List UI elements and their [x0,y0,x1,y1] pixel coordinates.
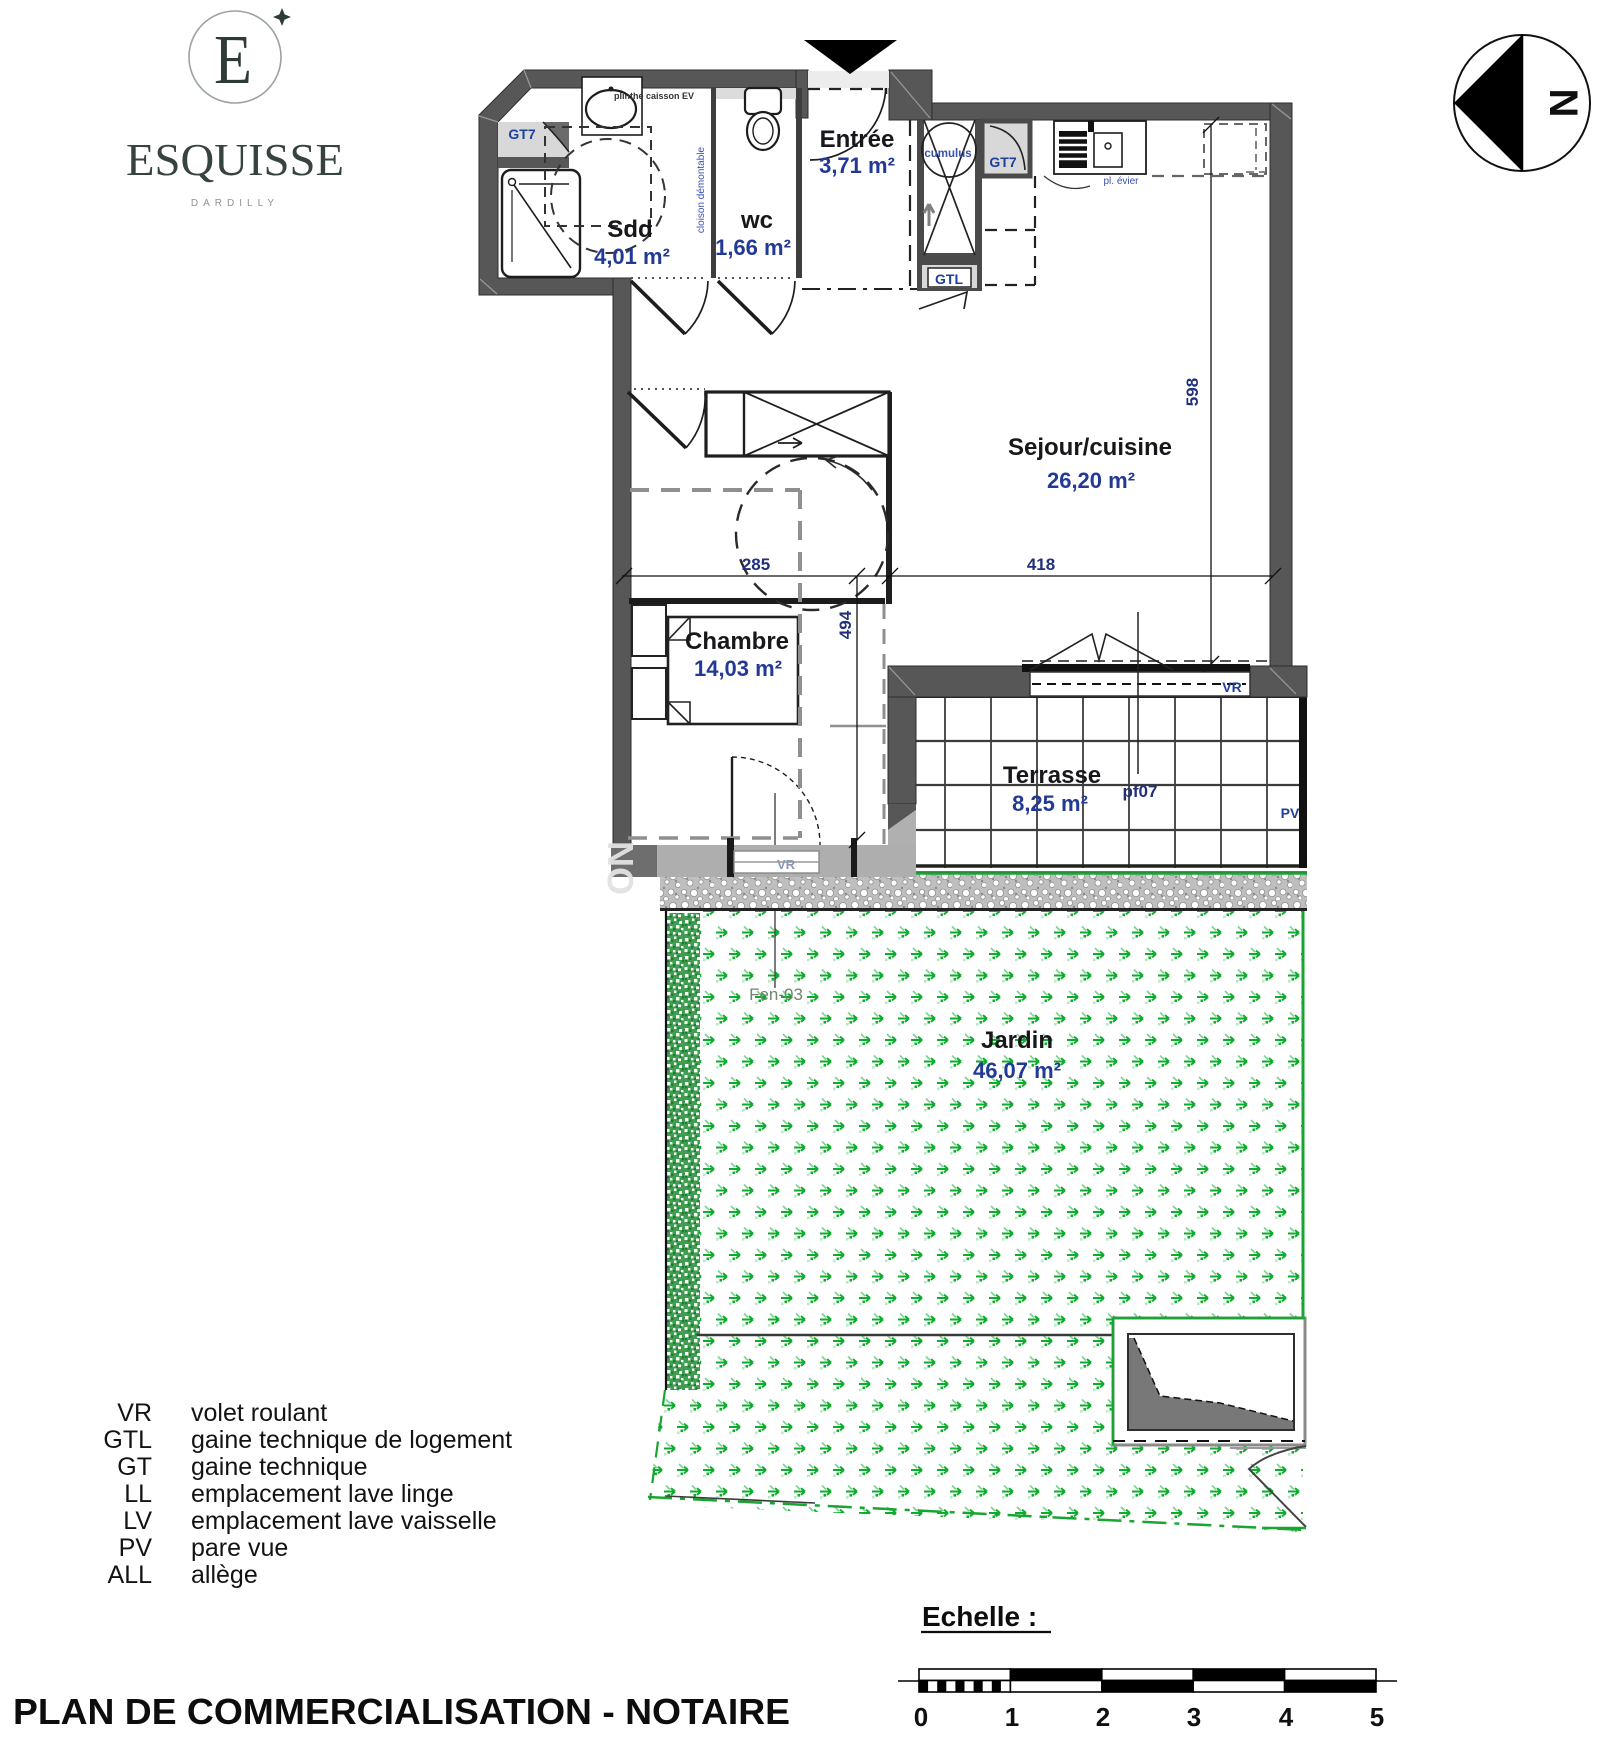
svg-text:pf07: pf07 [1123,782,1158,801]
svg-text:Jardin: Jardin [981,1027,1053,1054]
svg-text:0: 0 [914,1702,928,1732]
svg-text:gaine technique de logement: gaine technique de logement [191,1426,512,1454]
svg-text:LL: LL [124,1480,152,1508]
svg-text:GTL: GTL [935,271,963,287]
svg-text:VR: VR [1222,679,1241,695]
svg-text:E: E [214,22,252,99]
svg-text:GT: GT [117,1453,152,1481]
svg-text:Terrasse: Terrasse [1003,762,1101,789]
svg-text:Echelle :: Echelle : [922,1601,1037,1632]
svg-text:emplacement lave linge: emplacement lave linge [191,1480,454,1508]
svg-text:ESQUISSE: ESQUISSE [126,134,344,185]
svg-text:VR: VR [777,857,796,872]
svg-text:GTL: GTL [103,1426,152,1454]
svg-text:N: N [1541,89,1585,118]
svg-text:gaine technique: gaine technique [191,1453,368,1481]
svg-text:DARDILLY: DARDILLY [191,198,279,209]
svg-text:494: 494 [836,610,855,639]
svg-text:598: 598 [1183,378,1202,406]
svg-text:LV: LV [123,1507,152,1535]
svg-text:14,03 m²: 14,03 m² [694,656,782,681]
svg-text:VR: VR [117,1399,152,1427]
svg-text:Sejour/cuisine: Sejour/cuisine [1008,434,1172,461]
svg-text:4: 4 [1279,1702,1294,1732]
svg-text:GT7: GT7 [989,154,1016,170]
svg-text:cumulus: cumulus [924,148,971,160]
svg-text:pare vue: pare vue [191,1534,288,1562]
svg-text:Chambre: Chambre [685,628,789,655]
svg-text:Fen-03: Fen-03 [749,985,803,1004]
svg-text:PV: PV [1281,805,1300,821]
svg-text:ON: ON [600,841,641,895]
svg-text:3: 3 [1187,1702,1201,1732]
svg-text:3,71 m²: 3,71 m² [819,153,895,178]
svg-text:5: 5 [1370,1702,1384,1732]
svg-text:plinthe caisson EV: plinthe caisson EV [614,91,694,101]
svg-text:1,66 m²: 1,66 m² [715,235,791,260]
svg-text:1: 1 [1005,1702,1019,1732]
svg-text:4,01 m²: 4,01 m² [594,244,670,269]
svg-text:PV: PV [119,1534,153,1562]
svg-text:Entrée: Entrée [820,126,895,153]
svg-text:2: 2 [1096,1702,1110,1732]
svg-text:ALL: ALL [108,1561,153,1589]
svg-text:cloison démontable: cloison démontable [696,146,707,233]
svg-text:emplacement lave vaisselle: emplacement lave vaisselle [191,1507,497,1535]
svg-text:8,25 m²: 8,25 m² [1012,791,1088,816]
svg-text:GT7: GT7 [508,126,535,142]
svg-text:Sdd: Sdd [607,216,652,243]
svg-text:26,20 m²: 26,20 m² [1047,468,1135,493]
svg-text:pl. évier: pl. évier [1103,176,1139,187]
svg-text:PLAN DE COMMERCIALISATION - NO: PLAN DE COMMERCIALISATION - NOTAIRE [13,1691,790,1732]
svg-text:wc: wc [740,207,773,234]
svg-text:allège: allège [191,1561,258,1589]
svg-text:volet roulant: volet roulant [191,1399,327,1427]
svg-text:418: 418 [1027,555,1055,574]
svg-text:285: 285 [742,555,770,574]
svg-text:46,07 m²: 46,07 m² [973,1058,1061,1083]
